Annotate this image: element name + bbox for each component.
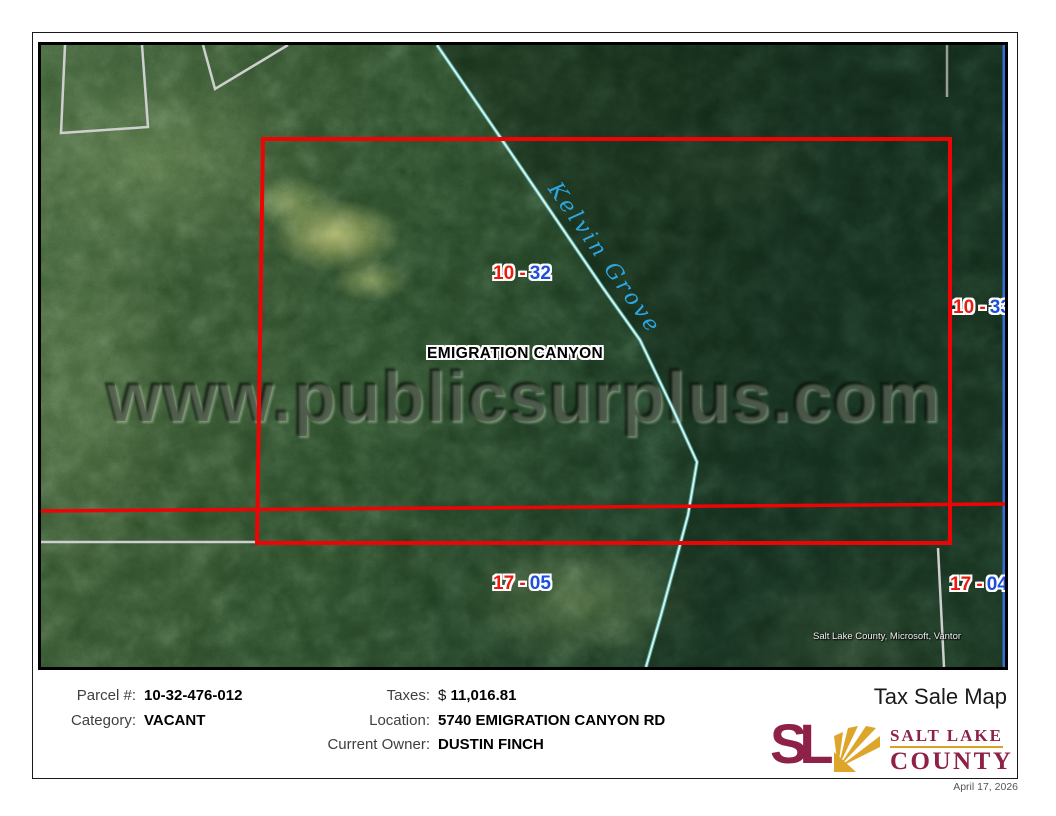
parcel-number-suffix: 05 — [530, 573, 551, 594]
parcel-info-right: Taxes: $ 11,016.81 Location: 5740 EMIGRA… — [320, 687, 665, 761]
section-line-red — [41, 504, 1005, 511]
page-title: Tax Sale Map — [874, 684, 1007, 710]
parcel-number-value: 10-32-476-012 — [144, 687, 242, 704]
taxes-value: 11,016.81 — [451, 687, 517, 704]
logo-monogram: SL — [770, 716, 826, 772]
road-label-kelvin-grove: Kelvin Grove — [542, 178, 661, 333]
logo-name-line1: SALT LAKE — [890, 727, 1003, 748]
category-value: VACANT — [144, 712, 205, 729]
info-value: DUSTIN FINCH — [438, 736, 665, 753]
map-attribution: Salt Lake County, Microsoft, Vantor — [813, 631, 961, 642]
info-value: VACANT — [144, 712, 242, 729]
parcel-info-left: Parcel #: 10-32-476-012 Category: VACANT — [66, 687, 242, 736]
tax-sale-map-page: www.publicsurplus.com — [0, 0, 1056, 816]
info-label: Current Owner: — [320, 736, 430, 753]
red-parcel-boundary — [257, 139, 950, 543]
parcel-label-10-32: 10 -32 — [493, 263, 551, 285]
owner-value: DUSTIN FINCH — [438, 736, 544, 753]
info-value: 5740 EMIGRATION CANYON RD — [438, 712, 665, 729]
logo-name-line2: COUNTY — [890, 749, 1013, 774]
parcel-number-suffix: 33 — [990, 297, 1005, 318]
county-logo: SL SALT LAKE COUNTY — [770, 722, 1013, 778]
parcel-number-suffix: 32 — [530, 263, 551, 284]
satellite-map: www.publicsurplus.com — [41, 45, 1005, 667]
info-value: 10-32-476-012 — [144, 687, 242, 704]
location-value: 5740 EMIGRATION CANYON RD — [438, 712, 665, 729]
parcel-number-prefix: 10 - — [953, 297, 986, 318]
info-label: Location: — [320, 712, 430, 729]
sunburst-icon — [834, 726, 880, 772]
watermark: www.publicsurplus.com — [41, 357, 1005, 438]
parcel-number-prefix: 10 - — [493, 263, 526, 284]
area-label-emigration-canyon: EMIGRATION CANYON — [427, 345, 603, 363]
parcel-number-prefix: 17 - — [950, 574, 983, 595]
info-label: Category: — [66, 712, 136, 729]
logo-monogram-mark: SL — [770, 722, 882, 778]
logo-county-name: SALT LAKE COUNTY — [890, 727, 1013, 774]
parcel-label-17-04: 17 -04 — [950, 574, 1005, 596]
parcel-label-17-05: 17 -05 — [493, 573, 551, 595]
info-label: Taxes: — [320, 687, 430, 704]
map-date: April 17, 2026 — [953, 781, 1018, 793]
parcel-number-suffix: 04 — [987, 574, 1005, 595]
info-label: Parcel #: — [66, 687, 136, 704]
parcel-number-prefix: 17 - — [493, 573, 526, 594]
info-value: $ 11,016.81 — [438, 687, 665, 704]
value-prefix: $ — [438, 687, 451, 704]
parcel-label-10-33: 10 -33 — [953, 297, 1005, 319]
map-frame: www.publicsurplus.com — [38, 42, 1008, 670]
